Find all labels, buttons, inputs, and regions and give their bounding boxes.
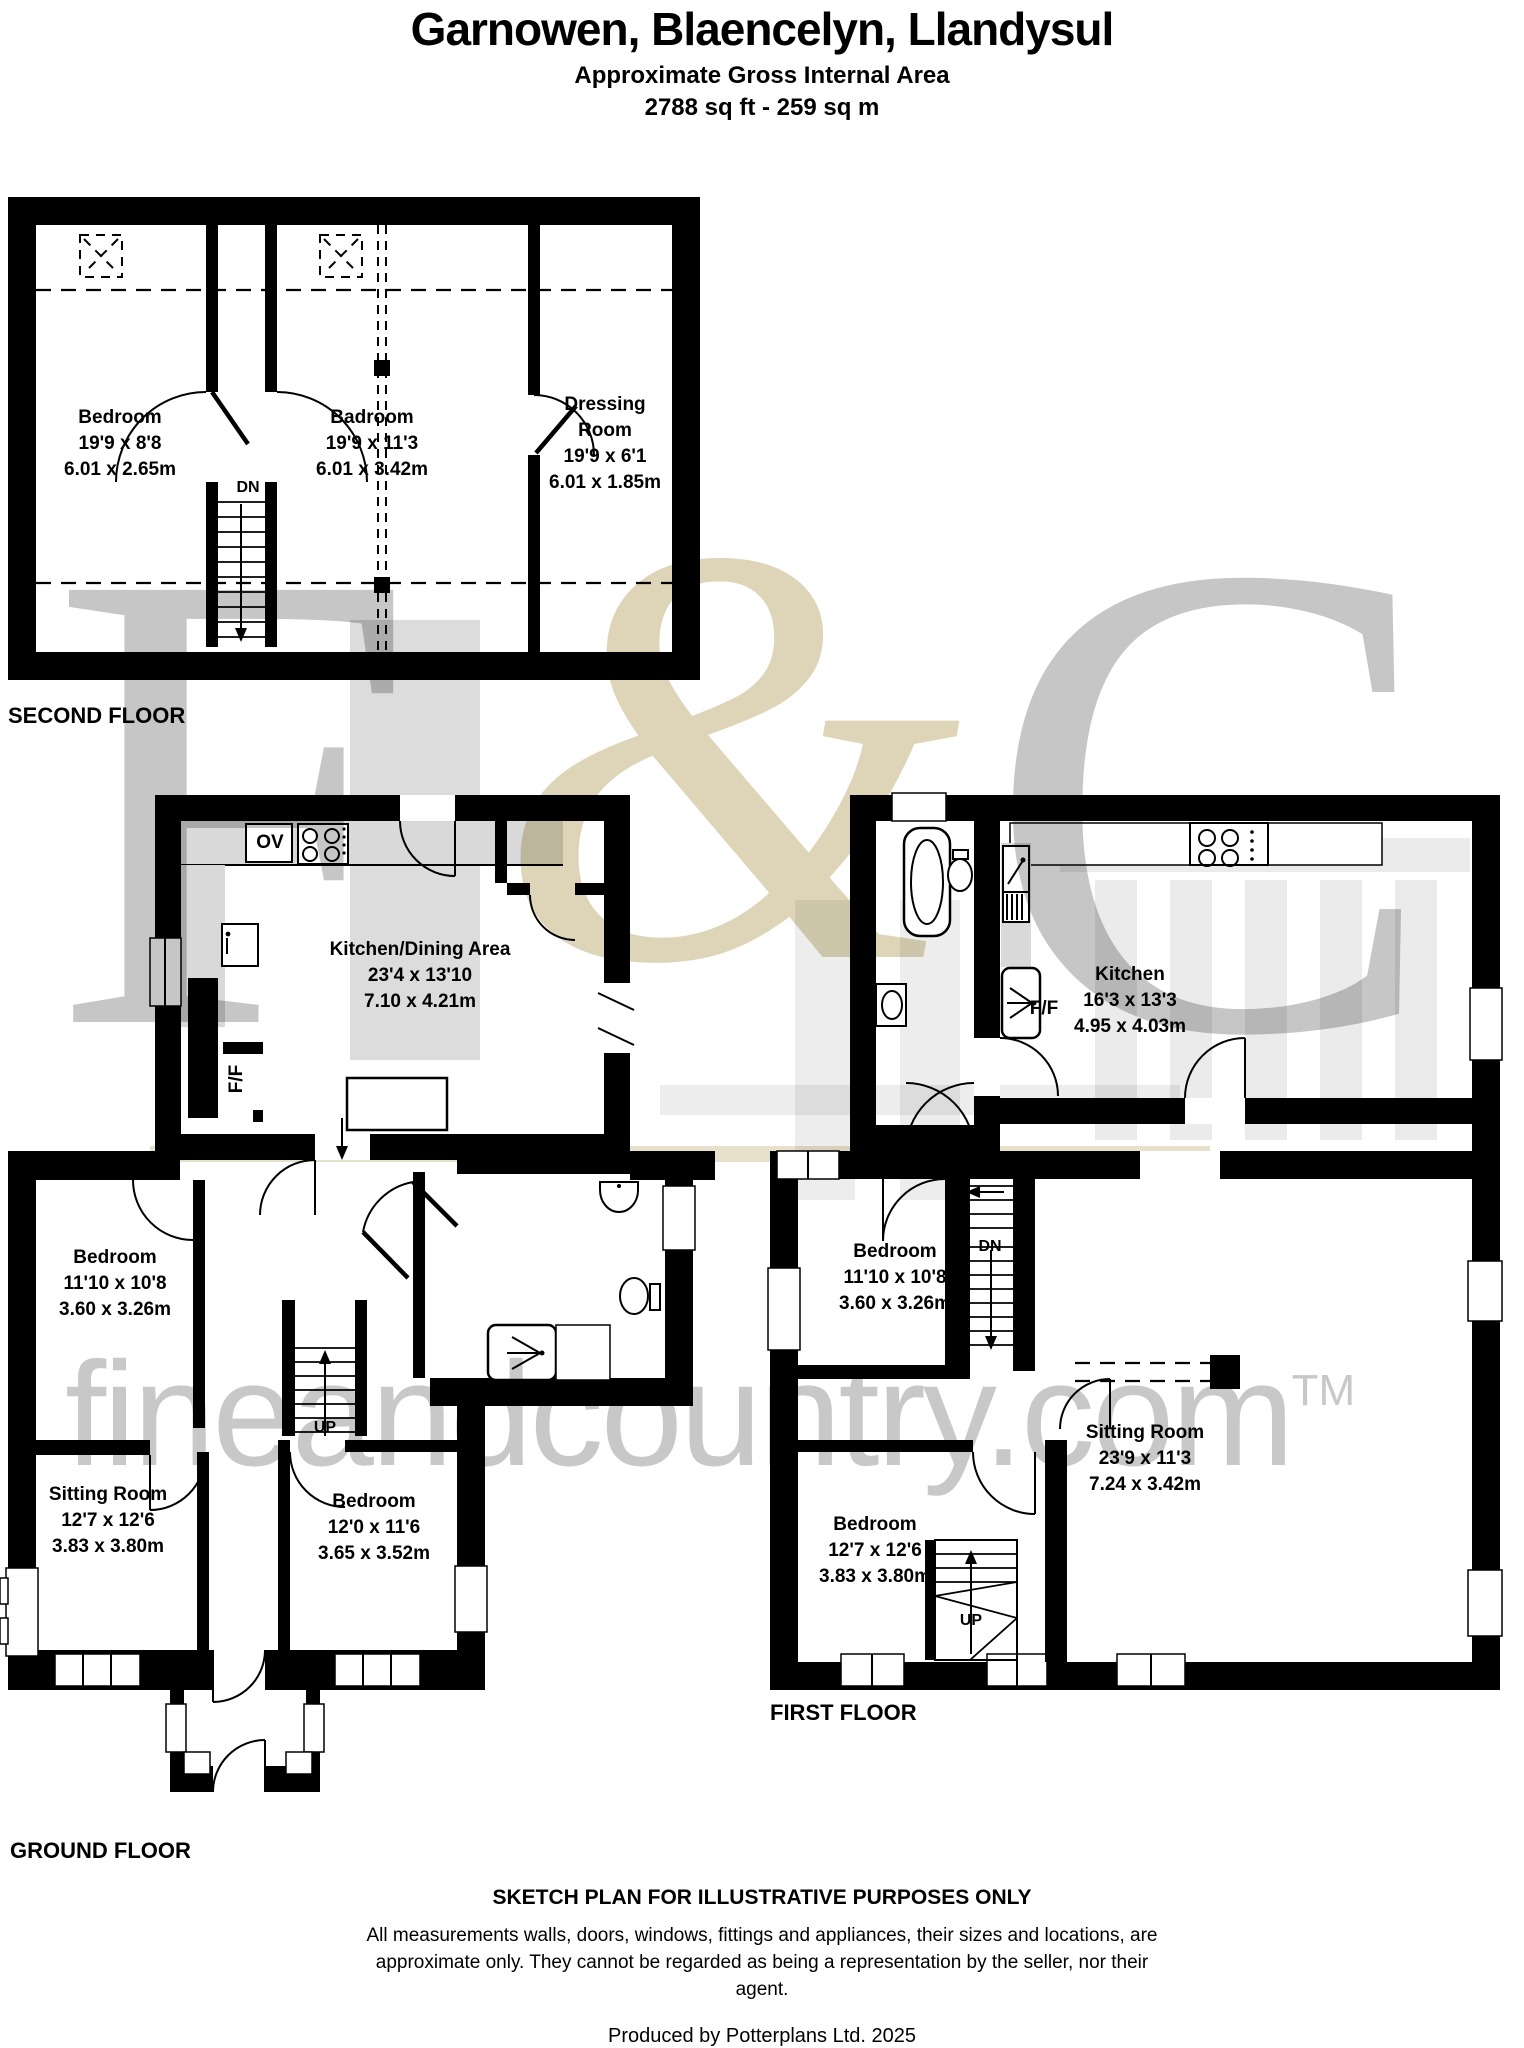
ground-floor-label: GROUND FLOOR (10, 1838, 191, 1864)
page-subtitle: Approximate Gross Internal Area (0, 62, 1524, 90)
footer-disclaimer: All measurements walls, doors, windows, … (362, 1922, 1162, 2003)
room-label-first-bedroom2: Bedroom 12'7 x 12'6 3.83 x 3.80m (775, 1512, 975, 1590)
room-label-ground-bedroom1: Bedroom 11'10 x 10'8 3.60 x 3.26m (15, 1245, 215, 1323)
second-floor-label: SECOND FLOOR (8, 703, 185, 729)
header: Garnowen, Blaencelyn, Llandysul Approxim… (0, 2, 1524, 122)
room-label-ground-kitchen: Kitchen/Dining Area 23'4 x 13'10 7.10 x … (320, 937, 520, 1015)
room-label-ground-sitting: Sitting Room 12'7 x 12'6 3.83 x 3.80m (8, 1482, 208, 1560)
stairs-up-label-first: UP (941, 1612, 1001, 1630)
oven-label: OV (240, 832, 300, 854)
gross-internal-area: 2788 sq ft - 259 sq m (0, 94, 1524, 122)
room-label-second-dressing: Dressing Room 19'9 x 6'1 6.01 x 1.85m (543, 392, 667, 496)
page-title: Garnowen, Blaencelyn, Llandysul (0, 2, 1524, 56)
fridge-freezer-label-ground: F/F (226, 1049, 248, 1109)
footer-credit: Produced by Potterplans Ltd. 2025 (0, 2025, 1524, 2048)
footer: SKETCH PLAN FOR ILLUSTRATIVE PURPOSES ON… (0, 1886, 1524, 2048)
stairs-up-label-ground: UP (295, 1419, 355, 1437)
first-floor-label: FIRST FLOOR (770, 1700, 917, 1726)
footer-heading: SKETCH PLAN FOR ILLUSTRATIVE PURPOSES ON… (0, 1886, 1524, 1910)
floorplan-page: Garnowen, Blaencelyn, Llandysul Approxim… (0, 0, 1524, 2048)
room-label-second-badroom: Badroom 19'9 x 11'3 6.01 x 3.42m (272, 405, 472, 483)
room-label-second-bedroom: Bedroom 19'9 x 8'8 6.01 x 2.65m (20, 405, 220, 483)
room-label-first-sitting: Sitting Room 23'9 x 11'3 7.24 x 3.42m (1045, 1420, 1245, 1498)
room-label-ground-bedroom2: Bedroom 12'0 x 11'6 3.65 x 3.52m (274, 1489, 474, 1567)
fridge-freezer-label-first: F/F (1014, 998, 1074, 1020)
stairs-dn-label-first: DN (960, 1238, 1020, 1256)
stairs-dn-label-second: DN (218, 479, 278, 497)
